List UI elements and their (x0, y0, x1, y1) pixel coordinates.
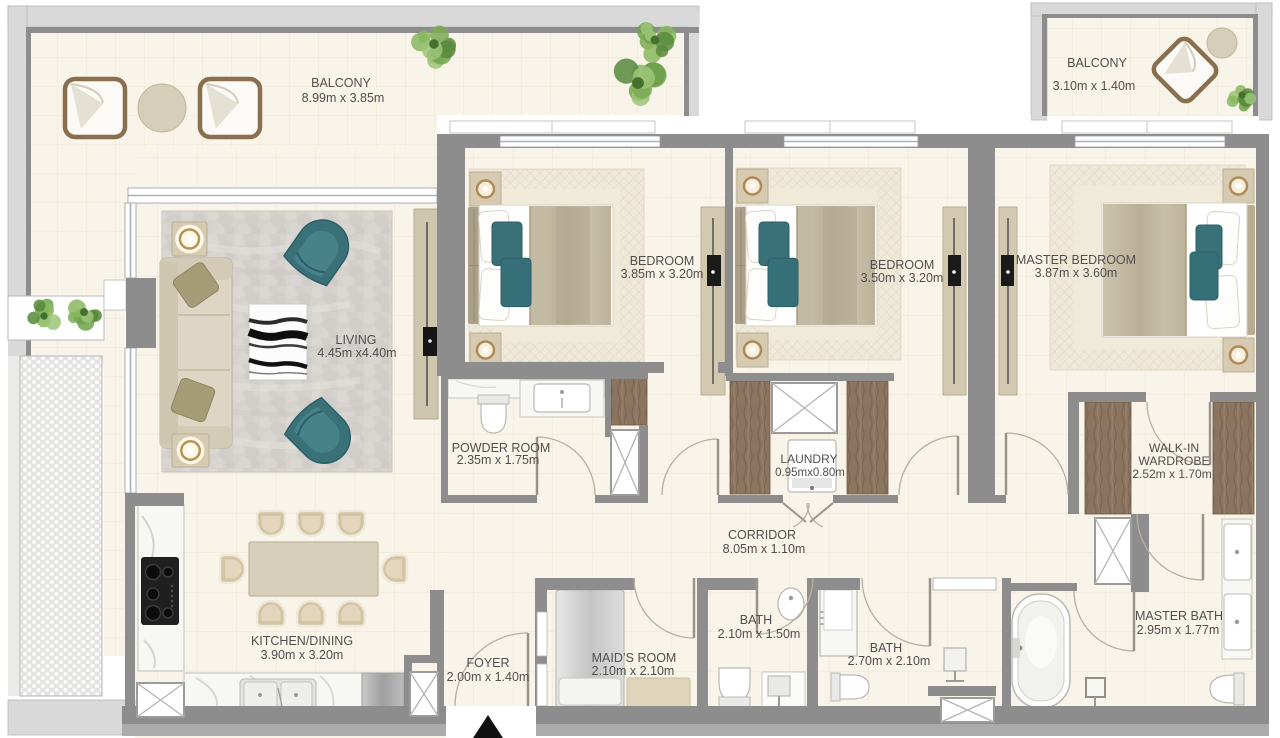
svg-text:LAUNDRY: LAUNDRY (780, 452, 837, 466)
svg-text:MASTER BATH: MASTER BATH (1135, 609, 1223, 623)
svg-text:WARDROBE: WARDROBE (1138, 454, 1209, 468)
svg-text:BATH: BATH (870, 641, 902, 655)
svg-text:2.10m x 1.50m: 2.10m x 1.50m (718, 627, 801, 641)
svg-text:WALK-IN: WALK-IN (1149, 441, 1199, 455)
svg-text:LIVING: LIVING (336, 333, 377, 347)
svg-text:FOYER: FOYER (466, 656, 509, 670)
svg-text:2.00m x 1.40m: 2.00m x 1.40m (447, 670, 530, 684)
svg-text:2.10m x 2.10m: 2.10m x 2.10m (592, 664, 675, 678)
svg-text:8.05m x 1.10m: 8.05m x 1.10m (723, 542, 806, 556)
svg-text:BATH: BATH (740, 613, 772, 627)
svg-text:BEDROOM: BEDROOM (630, 254, 695, 268)
svg-text:CORRIDOR: CORRIDOR (728, 528, 796, 542)
svg-text:3.50m x 3.20m: 3.50m x 3.20m (861, 271, 944, 285)
svg-text:4.45m x4.40m: 4.45m x4.40m (317, 346, 396, 360)
svg-text:3.10m x 1.40m: 3.10m x 1.40m (1053, 79, 1136, 93)
svg-text:MAID’S ROOM: MAID’S ROOM (592, 651, 677, 665)
svg-text:3.90m x 3.20m: 3.90m x 3.20m (261, 648, 344, 662)
svg-text:2.35m x 1.75m: 2.35m x 1.75m (457, 453, 540, 467)
svg-text:3.85m x 3.20m: 3.85m x 3.20m (621, 267, 704, 281)
svg-text:BALCONY: BALCONY (1067, 56, 1127, 70)
svg-text:KITCHEN/DINING: KITCHEN/DINING (251, 634, 353, 648)
svg-text:8.99m x 3.85m: 8.99m x 3.85m (302, 91, 385, 105)
svg-text:2.70m x 2.10m: 2.70m x 2.10m (848, 654, 931, 668)
svg-text:2.95m x 1.77m: 2.95m x 1.77m (1137, 623, 1220, 637)
svg-text:0.95mx0.80m: 0.95mx0.80m (775, 467, 845, 479)
svg-text:BALCONY: BALCONY (311, 76, 371, 90)
svg-text:BEDROOM: BEDROOM (870, 258, 935, 272)
svg-text:2.52m x 1.70m: 2.52m x 1.70m (1132, 467, 1211, 481)
svg-text:3.87m x 3.60m: 3.87m x 3.60m (1035, 266, 1118, 280)
svg-text:MASTER BEDROOM: MASTER BEDROOM (1016, 253, 1136, 267)
